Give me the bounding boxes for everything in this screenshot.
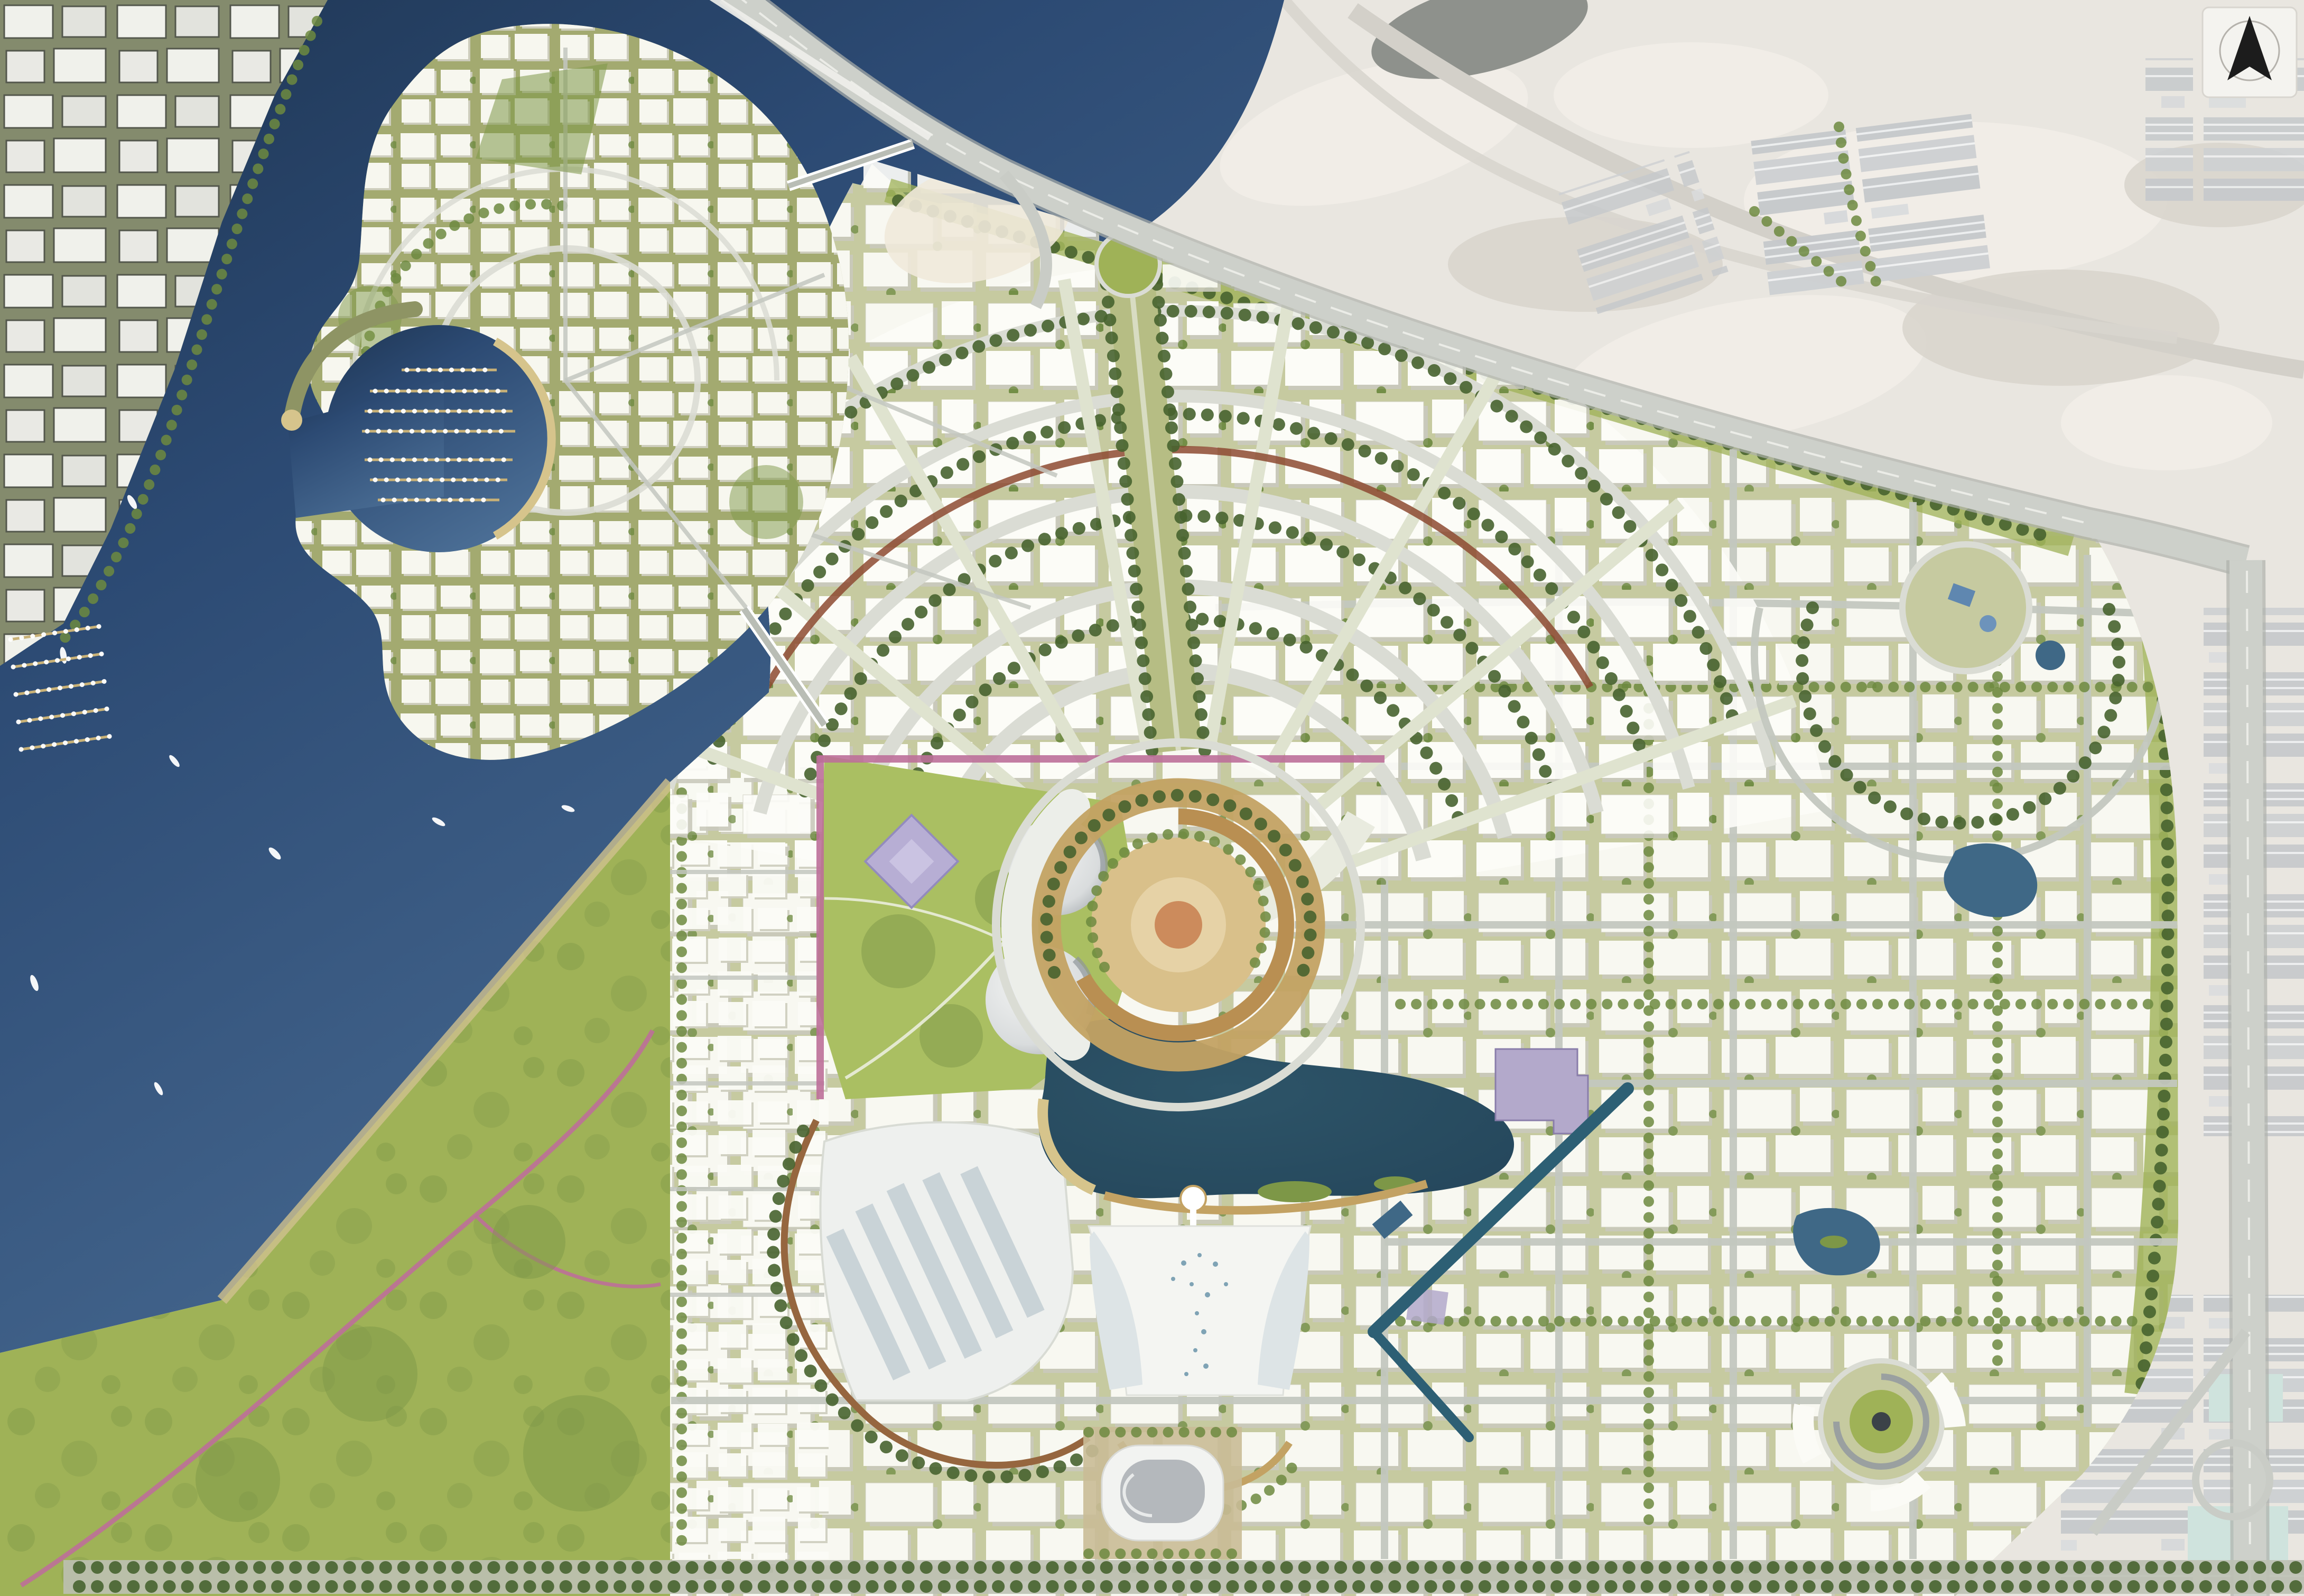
lake-pier [1181,1186,1206,1211]
masterplan-map [0,0,2304,1596]
breakwater-tip [281,410,302,431]
north-arrow [2203,7,2297,97]
lake-islet [1258,1181,1332,1202]
purple-block-large [1495,1049,1588,1134]
ne-circular-node [1902,544,2029,671]
stadium-bowl [1120,1460,1205,1523]
map-canvas [0,0,2304,1596]
tower-plaza [996,743,1361,1107]
ne-pond-small [2036,641,2065,670]
stadium [1083,1427,1242,1559]
tower-footprint [1155,901,1202,949]
bottom-boulevard [63,1560,2304,1594]
